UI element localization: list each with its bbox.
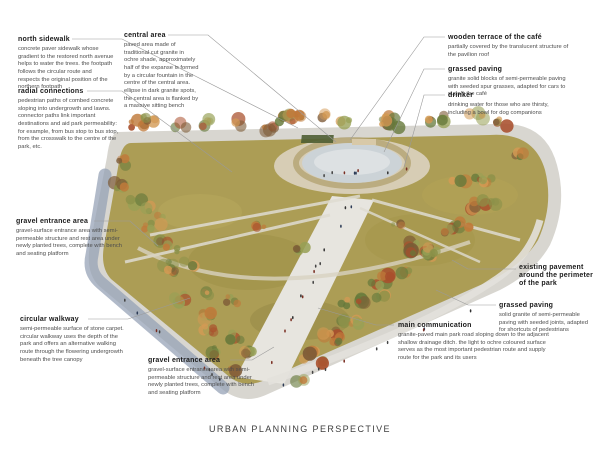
annotation-description: semi-permeable surface of stone carpet. … <box>20 326 126 364</box>
annotation-circular-walkway: circular walkway semi-permeable surface … <box>20 316 126 364</box>
leader-grassed-paving-perimeter <box>436 290 496 305</box>
leader-existing-pavement <box>452 260 516 269</box>
annotation-title: grassed paving <box>448 66 574 74</box>
annotation-grassed-paving-perimeter: grassed paving solid granite of semi-per… <box>499 302 593 335</box>
annotation-description: paved area made of traditional cut grani… <box>124 42 200 111</box>
annotation-description: granite-paved main park road sloping dow… <box>398 332 550 363</box>
annotation-description: gravel-surface entrance area with semi-p… <box>16 228 128 259</box>
annotation-description: solid granite of semi-permeable paving w… <box>499 312 593 335</box>
page-title: URBAN PLANNING PERSPECTIVE <box>0 424 600 434</box>
annotation-title: north sidewalk <box>18 36 114 44</box>
annotation-description: concrete paver sidewalk whose gradient t… <box>18 46 114 92</box>
leader-grassed-paving-cafe <box>384 69 445 152</box>
annotation-title: wooden terrace of the café <box>448 34 570 42</box>
annotation-title: gravel entrance area <box>148 357 262 365</box>
annotation-title: circular walkway <box>20 316 126 324</box>
annotation-title: central area <box>124 32 200 40</box>
annotation-title: gravel entrance area <box>16 218 128 226</box>
annotation-title: existing pavement around the perimeter o… <box>519 264 597 288</box>
annotation-title: radial connections <box>18 88 120 96</box>
annotation-gravel-entrance-south: gravel entrance area gravel-surface entr… <box>148 357 262 398</box>
annotation-central-area: central area paved area made of traditio… <box>124 32 200 111</box>
annotation-wooden-terrace-cafe: wooden terrace of the café partially cov… <box>448 34 570 59</box>
annotation-title: grassed paving <box>499 302 593 310</box>
leader-main-communication <box>318 308 394 325</box>
annotation-north-sidewalk: north sidewalk concrete paver sidewalk w… <box>18 36 114 92</box>
annotation-description: partially covered by the translucent str… <box>448 44 570 59</box>
annotation-existing-pavement: existing pavement around the perimeter o… <box>519 264 597 290</box>
annotation-radial-connections: radial connections pedestrian paths of c… <box>18 88 120 152</box>
annotation-gravel-entrance-west: gravel entrance area gravel-surface entr… <box>16 218 128 259</box>
annotation-description: drinking water for those who are thirsty… <box>448 102 560 117</box>
annotation-description: gravel-surface entrance area with semi-p… <box>148 367 262 398</box>
annotation-drinker: drinker drinking water for those who are… <box>448 92 560 117</box>
annotation-title: drinker <box>448 92 560 100</box>
leader-drinker <box>404 95 445 167</box>
annotation-description: pedestrian paths of combed concrete slop… <box>18 98 120 151</box>
